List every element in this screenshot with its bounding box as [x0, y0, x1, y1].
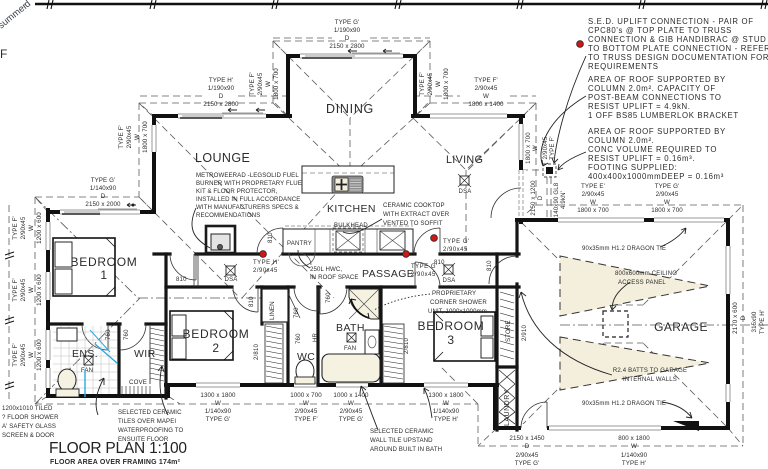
svg-text:KIT & FLOOR PROTECTOR,: KIT & FLOOR PROTECTOR,: [196, 188, 278, 195]
svg-text:TYPE G': TYPE G': [206, 416, 231, 423]
svg-text:1 OFF BS85 LUMBERLOK BRACKET: 1 OFF BS85 LUMBERLOK BRACKET: [588, 111, 739, 120]
svg-text:760: 760: [106, 329, 112, 340]
svg-text:W: W: [348, 400, 354, 407]
svg-text:AREA OF ROOF SUPPORTED BY: AREA OF ROOF SUPPORTED BY: [588, 75, 726, 84]
svg-text:R2.4 BATTS TO GARAGE: R2.4 BATTS TO GARAGE: [613, 368, 687, 374]
svg-text:TYPE H': TYPE H': [209, 77, 233, 84]
svg-text:WIR: WIR: [134, 348, 156, 360]
svg-text:2/90x45: 2/90x45: [126, 125, 133, 148]
svg-text:WALL TILE UPSTAND: WALL TILE UPSTAND: [370, 437, 433, 444]
svg-text:DINING: DINING: [326, 102, 374, 116]
svg-text:F: F: [0, 47, 8, 61]
svg-text:2: 2: [212, 341, 219, 355]
svg-text:250L HWC,: 250L HWC,: [310, 266, 342, 273]
svg-text:2150 x 2800: 2150 x 2800: [329, 43, 365, 50]
svg-text:LIVING: LIVING: [446, 154, 483, 166]
svg-text:1300 x 1800: 1300 x 1800: [200, 392, 236, 399]
svg-text:1800 x 700: 1800 x 700: [651, 207, 683, 214]
svg-text:WATERPROOFING TO: WATERPROOFING TO: [118, 427, 184, 434]
svg-text:POST-BEAM CONNECTIONS TO: POST-BEAM CONNECTIONS TO: [588, 93, 722, 102]
svg-text:2/810: 2/810: [254, 344, 260, 360]
svg-text:D: D: [345, 35, 350, 42]
svg-text:W: W: [215, 400, 221, 407]
svg-text:3: 3: [447, 333, 454, 347]
svg-text:LOUNGE: LOUNGE: [195, 151, 250, 165]
svg-text:315x90: 315x90: [751, 311, 758, 332]
svg-text:HR: HR: [313, 332, 319, 342]
svg-text:LINEN: LINEN: [269, 301, 276, 320]
svg-text:TYPE H': TYPE H': [759, 310, 766, 334]
svg-text:TYPE F': TYPE F': [249, 72, 256, 96]
svg-text:D: D: [101, 193, 106, 200]
svg-text:RECOMMENDATIONS: RECOMMENDATIONS: [196, 212, 260, 219]
svg-text:PROPRIETARY: PROPRIETARY: [432, 290, 476, 297]
svg-text:W: W: [28, 287, 35, 293]
svg-text:2/90x45: 2/90x45: [340, 408, 363, 415]
svg-text:? FLOOR SHOWER: ? FLOOR SHOWER: [2, 414, 59, 421]
svg-text:2/90x45: 2/90x45: [20, 343, 27, 366]
svg-text:D: D: [219, 93, 224, 100]
svg-text:2/90x45: 2/90x45: [20, 278, 27, 301]
svg-text:W: W: [28, 352, 35, 358]
svg-text:W: W: [265, 81, 272, 87]
svg-text:TYPE G': TYPE G': [443, 239, 470, 245]
svg-text:TYPE F': TYPE F': [12, 278, 19, 302]
svg-text:2150 x 1450: 2150 x 1450: [509, 435, 545, 442]
svg-text:BEDROOM: BEDROOM: [183, 327, 250, 341]
svg-text:AREA OF ROOF SUPPORTED BY: AREA OF ROOF SUPPORTED BY: [588, 127, 726, 136]
svg-text:W: W: [590, 199, 596, 206]
svg-text:760: 760: [124, 329, 130, 340]
svg-text:WC: WC: [297, 351, 315, 363]
svg-text:2/90x45: 2/90x45: [516, 452, 539, 459]
svg-text:CORNER SHOWER: CORNER SHOWER: [430, 299, 487, 306]
svg-text:TYPE G': TYPE G': [655, 183, 680, 190]
svg-text:2150 x 2000: 2150 x 2000: [85, 201, 121, 208]
svg-text:TYPE F': TYPE F': [550, 136, 556, 160]
svg-text:TYPE H': TYPE H': [253, 260, 279, 266]
svg-text:TYPE F': TYPE F': [12, 216, 19, 240]
svg-text:FLOOR PLAN 1:100: FLOOR PLAN 1:100: [49, 440, 188, 457]
svg-text:1/140x90: 1/140x90: [205, 408, 232, 415]
svg-text:SCREEN & DOOR: SCREEN & DOOR: [2, 432, 55, 439]
svg-text:1/190x90: 1/190x90: [208, 85, 235, 92]
svg-text:TYPE G': TYPE G': [91, 177, 116, 184]
svg-text:760: 760: [296, 333, 302, 344]
svg-text:TYPE F': TYPE F': [118, 125, 125, 149]
svg-text:TYPE F': TYPE F': [294, 416, 318, 423]
svg-text:1: 1: [100, 268, 107, 282]
svg-text:TYPE G': TYPE G': [515, 460, 540, 467]
svg-text:140x90 GL8: 140x90 GL8: [554, 182, 560, 217]
svg-text:BURNER WITH PROPRETARY FLUE: BURNER WITH PROPRETARY FLUE: [196, 180, 302, 187]
svg-text:IN ROOF SPACE: IN ROOF SPACE: [310, 274, 359, 281]
svg-text:DSA: DSA: [225, 277, 238, 283]
svg-text:2170 x 600: 2170 x 600: [732, 302, 739, 334]
svg-text:CPC80's @ TOP PLATE TO TRUSS: CPC80's @ TOP PLATE TO TRUSS: [588, 26, 732, 35]
svg-text:800x600mm CEILING: 800x600mm CEILING: [615, 271, 677, 277]
svg-text:WITH MANUFACTURERS SPECS &: WITH MANUFACTURERS SPECS &: [196, 204, 299, 211]
svg-text:SELECTED CERAMIC: SELECTED CERAMIC: [370, 428, 434, 435]
svg-text:800 x 1800: 800 x 1800: [618, 435, 650, 442]
svg-text:2/90x45: 2/90x45: [656, 191, 679, 198]
svg-text:2/90x45: 2/90x45: [582, 191, 605, 198]
svg-text:VENTED TO SOFFIT: VENTED TO SOFFIT: [383, 220, 443, 227]
svg-text:BATH: BATH: [336, 322, 365, 334]
svg-text:CONNECTION & GIB HANDIBRAC @ S: CONNECTION & GIB HANDIBRAC @ STUD: [588, 35, 766, 44]
svg-text:1800 x 700: 1800 x 700: [273, 68, 280, 100]
svg-text:TO BOTTOM PLATE CONNECTION - R: TO BOTTOM PLATE CONNECTION - REFER: [588, 44, 768, 53]
svg-text:810: 810: [434, 260, 445, 266]
svg-text:810: 810: [487, 260, 493, 271]
svg-text:1000 x 1400: 1000 x 1400: [333, 392, 369, 399]
svg-text:BULKHEAD: BULKHEAD: [334, 223, 368, 229]
svg-text:W: W: [631, 443, 637, 450]
svg-text:760: 760: [294, 307, 300, 318]
svg-text:DSA: DSA: [443, 278, 456, 284]
svg-text:760: 760: [326, 292, 332, 303]
svg-text:UNIT, 1000x1000mm: UNIT, 1000x1000mm: [428, 308, 487, 315]
svg-text:4.9kN': 4.9kN': [561, 191, 567, 209]
svg-text:W: W: [303, 400, 309, 407]
svg-text:1/190x90: 1/190x90: [334, 27, 361, 34]
svg-text:FOOTING SUPPLIED:: FOOTING SUPPLIED:: [588, 163, 677, 172]
svg-text:2/90x45: 2/90x45: [253, 268, 278, 274]
svg-text:1200 x 600: 1200 x 600: [36, 339, 43, 371]
svg-text:RESIST UPLIFT = 0.16m³.: RESIST UPLIFT = 0.16m³.: [588, 154, 695, 163]
svg-text:TYPE F': TYPE F': [474, 77, 498, 84]
svg-text:TYPE H': TYPE H': [434, 416, 458, 423]
svg-text:KITCHEN: KITCHEN: [327, 203, 376, 215]
svg-text:REQUIREMENTS: REQUIREMENTS: [588, 62, 659, 71]
svg-text:1200 x 600: 1200 x 600: [36, 212, 43, 244]
svg-text:2/90x45: 2/90x45: [411, 272, 436, 278]
svg-text:METROWEERAD -LEGSOLID FUEL: METROWEERAD -LEGSOLID FUEL: [196, 172, 299, 179]
svg-text:1800 x 700: 1800 x 700: [443, 68, 450, 100]
svg-text:1800 x 700: 1800 x 700: [526, 132, 532, 164]
svg-text:CONC VOLUME REQUIRED TO: CONC VOLUME REQUIRED TO: [588, 145, 717, 154]
svg-text:W: W: [443, 400, 449, 407]
svg-text:RESIST UPLIFT = 4.9kN.: RESIST UPLIFT = 4.9kN.: [588, 102, 691, 111]
svg-text:400x400x1000mmDEEP = 0.16m³: 400x400x1000mmDEEP = 0.16m³: [588, 172, 724, 181]
svg-text:2/90x45: 2/90x45: [475, 85, 498, 92]
svg-text:ACCESS PANEL: ACCESS PANEL: [618, 280, 666, 286]
svg-text:1/140x90: 1/140x90: [433, 408, 460, 415]
svg-text:CERAMIC COOKTOP: CERAMIC COOKTOP: [383, 202, 445, 209]
svg-text:TO TRUSS DESIGN DOCUMENTATION: TO TRUSS DESIGN DOCUMENTATION FOR: [588, 53, 768, 62]
svg-text:W: W: [28, 225, 35, 231]
svg-text:90x35mm H1.2 DRAGON TIE: 90x35mm H1.2 DRAGON TIE: [582, 246, 666, 252]
svg-text:BEDROOM: BEDROOM: [418, 319, 485, 333]
svg-text:2/90x45: 2/90x45: [543, 136, 549, 159]
svg-text:COVE: COVE: [129, 379, 147, 386]
svg-text:2150 x 2800: 2150 x 2800: [203, 101, 239, 108]
svg-text:SELECTED CERAMIC: SELECTED CERAMIC: [118, 409, 182, 416]
svg-text:ENS.: ENS.: [72, 348, 98, 360]
svg-text:W: W: [664, 199, 670, 206]
svg-text:810: 810: [249, 296, 255, 307]
svg-text:A' SAFETY GLASS: A' SAFETY GLASS: [2, 423, 56, 430]
svg-text:1200x1010 TILED: 1200x1010 TILED: [2, 405, 53, 412]
svg-text:PASSAGE: PASSAGE: [362, 268, 414, 280]
svg-text:2/90x45: 2/90x45: [427, 72, 434, 95]
svg-text:DSA: DSA: [459, 189, 472, 195]
svg-text:1200 x 600: 1200 x 600: [36, 274, 43, 306]
svg-text:2/90x45: 2/90x45: [257, 72, 264, 95]
svg-text:W: W: [533, 145, 539, 151]
svg-text:90x35mm H1.2 DRAGON TIE: 90x35mm H1.2 DRAGON TIE: [582, 401, 666, 407]
svg-text:PANTRY: PANTRY: [287, 241, 312, 247]
svg-text:1800 x 1400: 1800 x 1400: [468, 101, 504, 108]
svg-text:GARAGE: GARAGE: [654, 320, 708, 334]
svg-text:2/90x45: 2/90x45: [295, 408, 318, 415]
svg-text:W: W: [483, 93, 489, 100]
svg-text:AROUND BUILT IN BATH: AROUND BUILT IN BATH: [370, 446, 442, 453]
svg-text:2150 x 1200: 2150 x 1200: [531, 180, 537, 216]
svg-text:W: W: [134, 134, 141, 140]
svg-text:WITH EXTRACT OVER: WITH EXTRACT OVER: [383, 211, 450, 218]
svg-text:S.E.D. UPLIFT CONNECTION - PAI: S.E.D. UPLIFT CONNECTION - PAIR OF: [588, 17, 754, 26]
svg-text:2/910: 2/910: [522, 325, 528, 341]
svg-text:2/810: 2/810: [404, 338, 410, 354]
svg-text:INSTALLED IN FULL ACCORDANCE: INSTALLED IN FULL ACCORDANCE: [196, 196, 300, 203]
svg-text:D: D: [740, 315, 747, 320]
svg-text:1300 x 1800: 1300 x 1800: [428, 392, 464, 399]
svg-text:810: 810: [268, 232, 274, 243]
svg-text:COLUMN 2.0m².: COLUMN 2.0m².: [588, 136, 655, 145]
svg-text:TYPE H': TYPE H': [622, 460, 646, 467]
svg-text:TYPE G': TYPE G': [335, 19, 360, 26]
svg-text:D: D: [538, 195, 544, 200]
svg-text:LAUNDRY: LAUNDRY: [504, 389, 511, 426]
svg-text:FAN: FAN: [344, 346, 356, 352]
svg-text:BEDROOM: BEDROOM: [71, 255, 138, 269]
svg-text:2/90x45: 2/90x45: [443, 247, 468, 253]
svg-text:1/140x90: 1/140x90: [90, 185, 117, 192]
svg-text:TYPE G': TYPE G': [339, 416, 364, 423]
svg-text:1000 x 700: 1000 x 700: [290, 392, 322, 399]
svg-text:TYPE F': TYPE F': [12, 343, 19, 367]
svg-text:1800 x 700: 1800 x 700: [577, 207, 609, 214]
svg-text:STORE: STORE: [505, 320, 512, 342]
svg-text:TYPE F': TYPE F': [419, 72, 426, 96]
svg-text:INTERNAL WALLS: INTERNAL WALLS: [623, 377, 677, 383]
svg-text:W: W: [435, 81, 442, 87]
svg-text:810: 810: [176, 277, 187, 283]
svg-text:FAN: FAN: [81, 368, 93, 374]
svg-text:1800 x 700: 1800 x 700: [142, 121, 149, 153]
svg-text:D: D: [525, 443, 530, 450]
svg-text:2/90x45: 2/90x45: [20, 216, 27, 239]
svg-text:FLOOR AREA OVER FRAMING 174m²: FLOOR AREA OVER FRAMING 174m²: [50, 459, 181, 466]
svg-text:TILES OVER MAPEI: TILES OVER MAPEI: [118, 418, 176, 425]
svg-text:1/140x90: 1/140x90: [621, 452, 648, 459]
svg-text:TYPE E': TYPE E': [581, 183, 605, 190]
svg-text:COLUMN 2.0m². CAPACITY OF: COLUMN 2.0m². CAPACITY OF: [588, 84, 716, 93]
